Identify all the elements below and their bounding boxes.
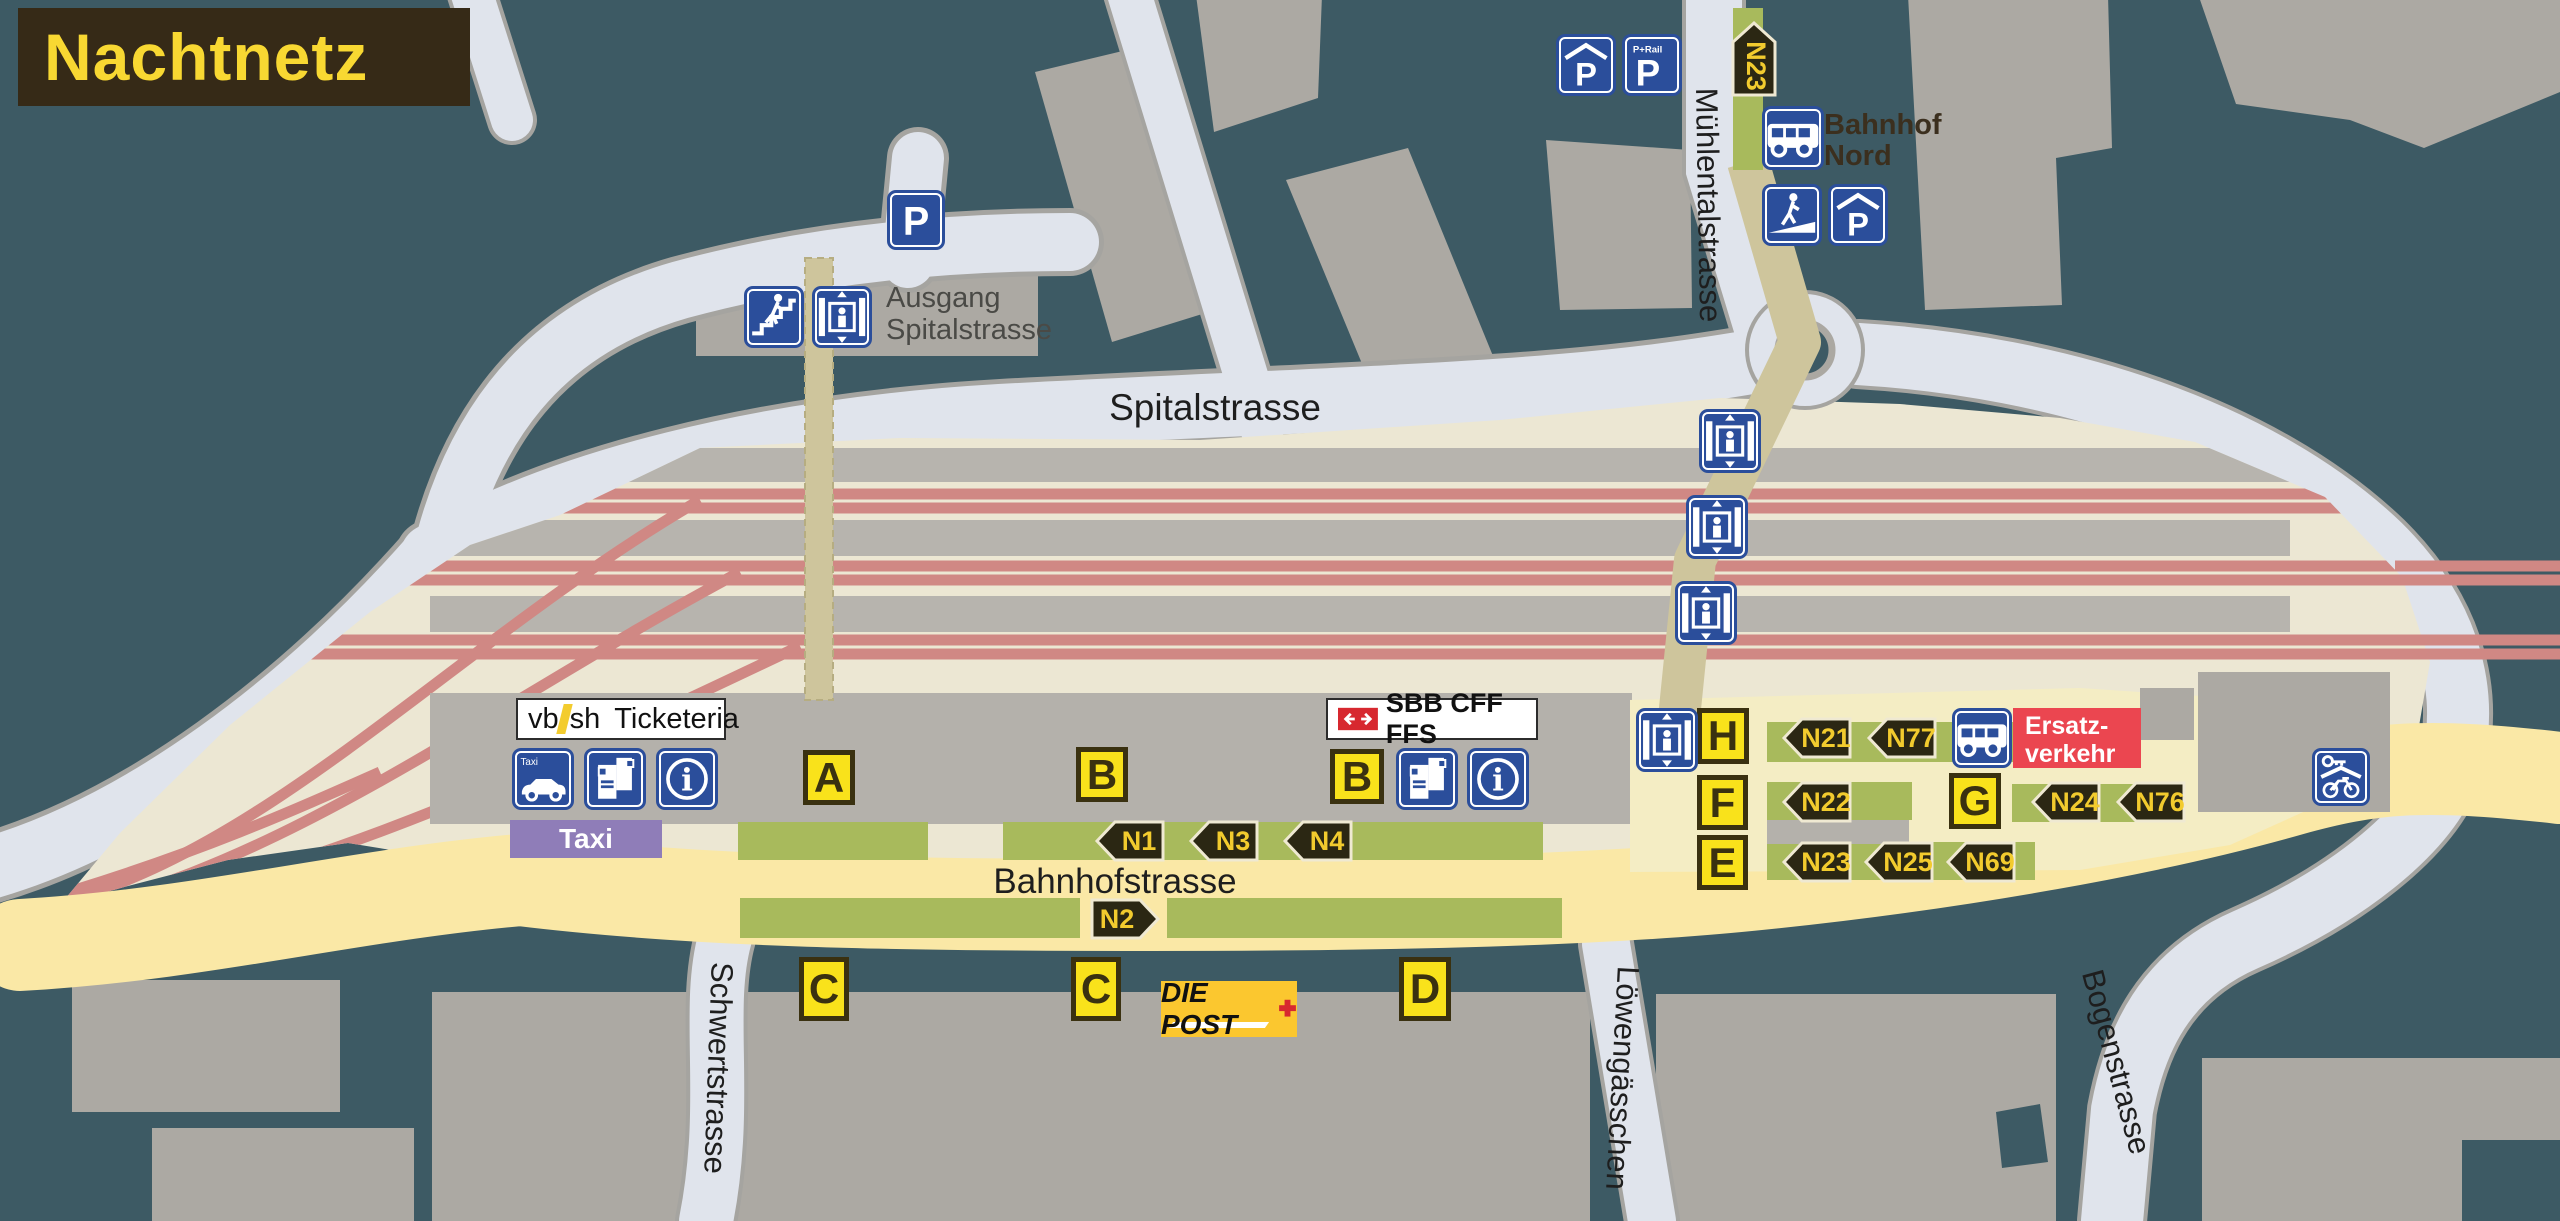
svg-text:N1: N1 — [1122, 826, 1157, 856]
svg-text:i: i — [1492, 762, 1504, 798]
elevator-icon-3 — [1675, 581, 1737, 645]
street-label-schwertstrasse: Schwertstrasse — [696, 961, 739, 1174]
bus-stop-b-east: B — [1330, 749, 1384, 804]
bus-stop-c-west: C — [799, 957, 849, 1021]
parking-icon: P — [887, 190, 945, 250]
covered-parking-nord-icon: P — [1828, 184, 1888, 246]
svg-text:P: P — [1636, 52, 1661, 93]
rail-platforms — [430, 448, 2290, 632]
line-badge-n2: N2 — [1089, 896, 1161, 942]
taxi-icon: Taxi — [512, 748, 574, 810]
svg-text:N22: N22 — [1801, 787, 1851, 817]
svg-text:N24: N24 — [2050, 787, 2100, 817]
bus-icon-ersatzverkehr — [1952, 708, 2012, 768]
svg-text:N76: N76 — [2135, 787, 2185, 817]
line-badge-n69: N69 — [1945, 839, 2017, 885]
map-title-box: Nachtnetz — [18, 8, 470, 106]
bus-stop-b-west: B — [1076, 747, 1128, 802]
svg-text:N2: N2 — [1100, 904, 1135, 934]
ticket-machine-icon-west — [584, 748, 646, 810]
svg-text:N23: N23 — [1801, 847, 1851, 877]
bus-stop-c-east: C — [1071, 957, 1121, 1021]
bike-storage-icon — [2312, 748, 2370, 806]
sbb-logo-icon — [1338, 705, 1378, 733]
svg-text:P: P — [1575, 55, 1597, 92]
svg-text:P: P — [1847, 205, 1869, 242]
svg-text:N3: N3 — [1216, 826, 1251, 856]
line-badge-n76: N76 — [2115, 779, 2187, 825]
street-label-muehlentalstrasse: Mühlentalstrasse — [1688, 88, 1728, 323]
svg-text:N4: N4 — [1310, 826, 1345, 856]
covered-parking-icon: P — [1556, 34, 1616, 96]
info-icon-west: i — [656, 748, 718, 810]
ticket-machine-icon-east — [1396, 748, 1458, 810]
bus-stop-f: F — [1697, 775, 1748, 830]
svg-text:i: i — [681, 762, 693, 798]
ramp-icon — [1762, 184, 1822, 246]
map-title: Nachtnetz — [44, 19, 368, 95]
elevator-icon-1 — [1699, 409, 1761, 473]
info-icon-east: i — [1467, 748, 1529, 810]
die-post-sign: DIE POST — [1161, 981, 1297, 1037]
bus-stop-a: A — [803, 750, 855, 805]
svg-text:N69: N69 — [1965, 847, 2015, 877]
vbsh-ticketeria-sign: vbsh Ticketeria — [516, 698, 726, 740]
nachtnetz-station-map: Nachtnetz Spitalstrasse Bahnhofstrasse M… — [0, 0, 2560, 1221]
line-badge-n21: N21 — [1781, 715, 1853, 761]
elevator-icon-ausgang — [812, 286, 872, 348]
svg-text:N21: N21 — [1801, 723, 1851, 753]
bus-stop-e: E — [1697, 835, 1748, 890]
bahnhof-nord-label: Bahnhof Nord — [1824, 110, 1942, 172]
svg-text:N77: N77 — [1886, 723, 1936, 753]
line-badge-n22: N22 — [1781, 779, 1853, 825]
bus-stop-h: H — [1697, 708, 1749, 764]
line-badge-n23-nord: N23 — [1730, 20, 1778, 98]
svg-text:N25: N25 — [1883, 847, 1933, 877]
svg-text:Taxi: Taxi — [520, 757, 538, 768]
taxi-stand-label: Taxi — [510, 820, 662, 858]
line-badge-n3: N3 — [1188, 818, 1260, 864]
line-badge-n23: N23 — [1781, 839, 1853, 885]
stairs-icon — [744, 286, 804, 348]
bus-icon-bahnhof-nord — [1762, 106, 1824, 170]
svg-text:P: P — [903, 200, 929, 244]
line-badge-n4: N4 — [1282, 818, 1354, 864]
line-badge-n25: N25 — [1863, 839, 1935, 885]
ausgang-spitalstrasse-label: Ausgang Spitalstrasse — [886, 282, 1052, 346]
line-badge-n77: N77 — [1866, 715, 1938, 761]
svg-text:N23: N23 — [1741, 41, 1771, 91]
sbb-sign: SBB CFF FFS — [1326, 698, 1538, 740]
elevator-icon-4 — [1636, 708, 1698, 772]
elevator-icon-2 — [1686, 495, 1748, 559]
street-label-spitalstrasse: Spitalstrasse — [1109, 387, 1321, 429]
line-badge-n1: N1 — [1094, 818, 1166, 864]
line-badge-n24: N24 — [2030, 779, 2102, 825]
base-map — [0, 0, 2560, 1221]
bus-stop-d: D — [1399, 957, 1451, 1021]
p-rail-parking-icon: P+Rail P — [1622, 34, 1682, 96]
bus-stop-g: G — [1949, 773, 2001, 829]
ersatzverkehr-label: Ersatz- verkehr — [2013, 708, 2141, 768]
swiss-cross-icon — [1277, 997, 1297, 1021]
